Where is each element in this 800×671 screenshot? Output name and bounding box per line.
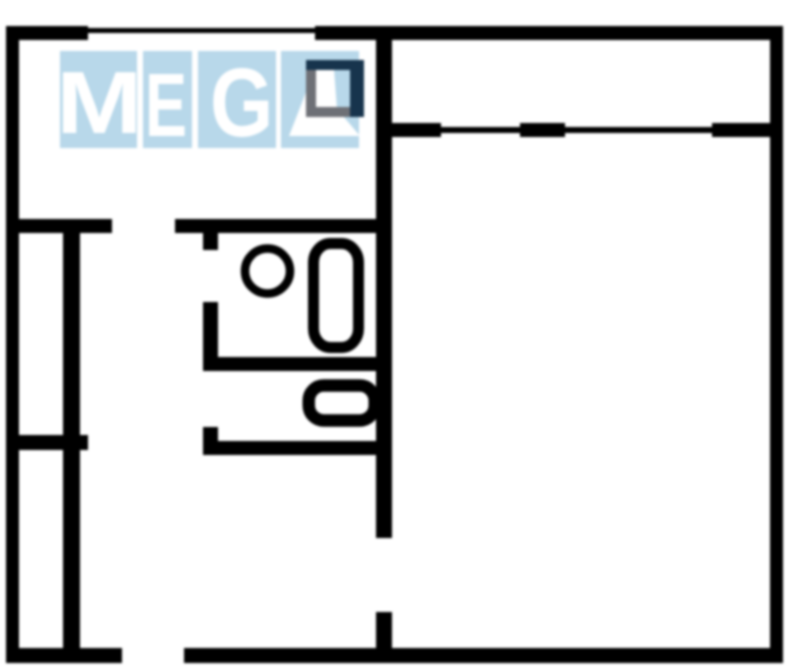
- svg-text:G: G: [210, 48, 273, 156]
- svg-text:M: M: [56, 54, 142, 152]
- svg-text:E: E: [145, 56, 187, 156]
